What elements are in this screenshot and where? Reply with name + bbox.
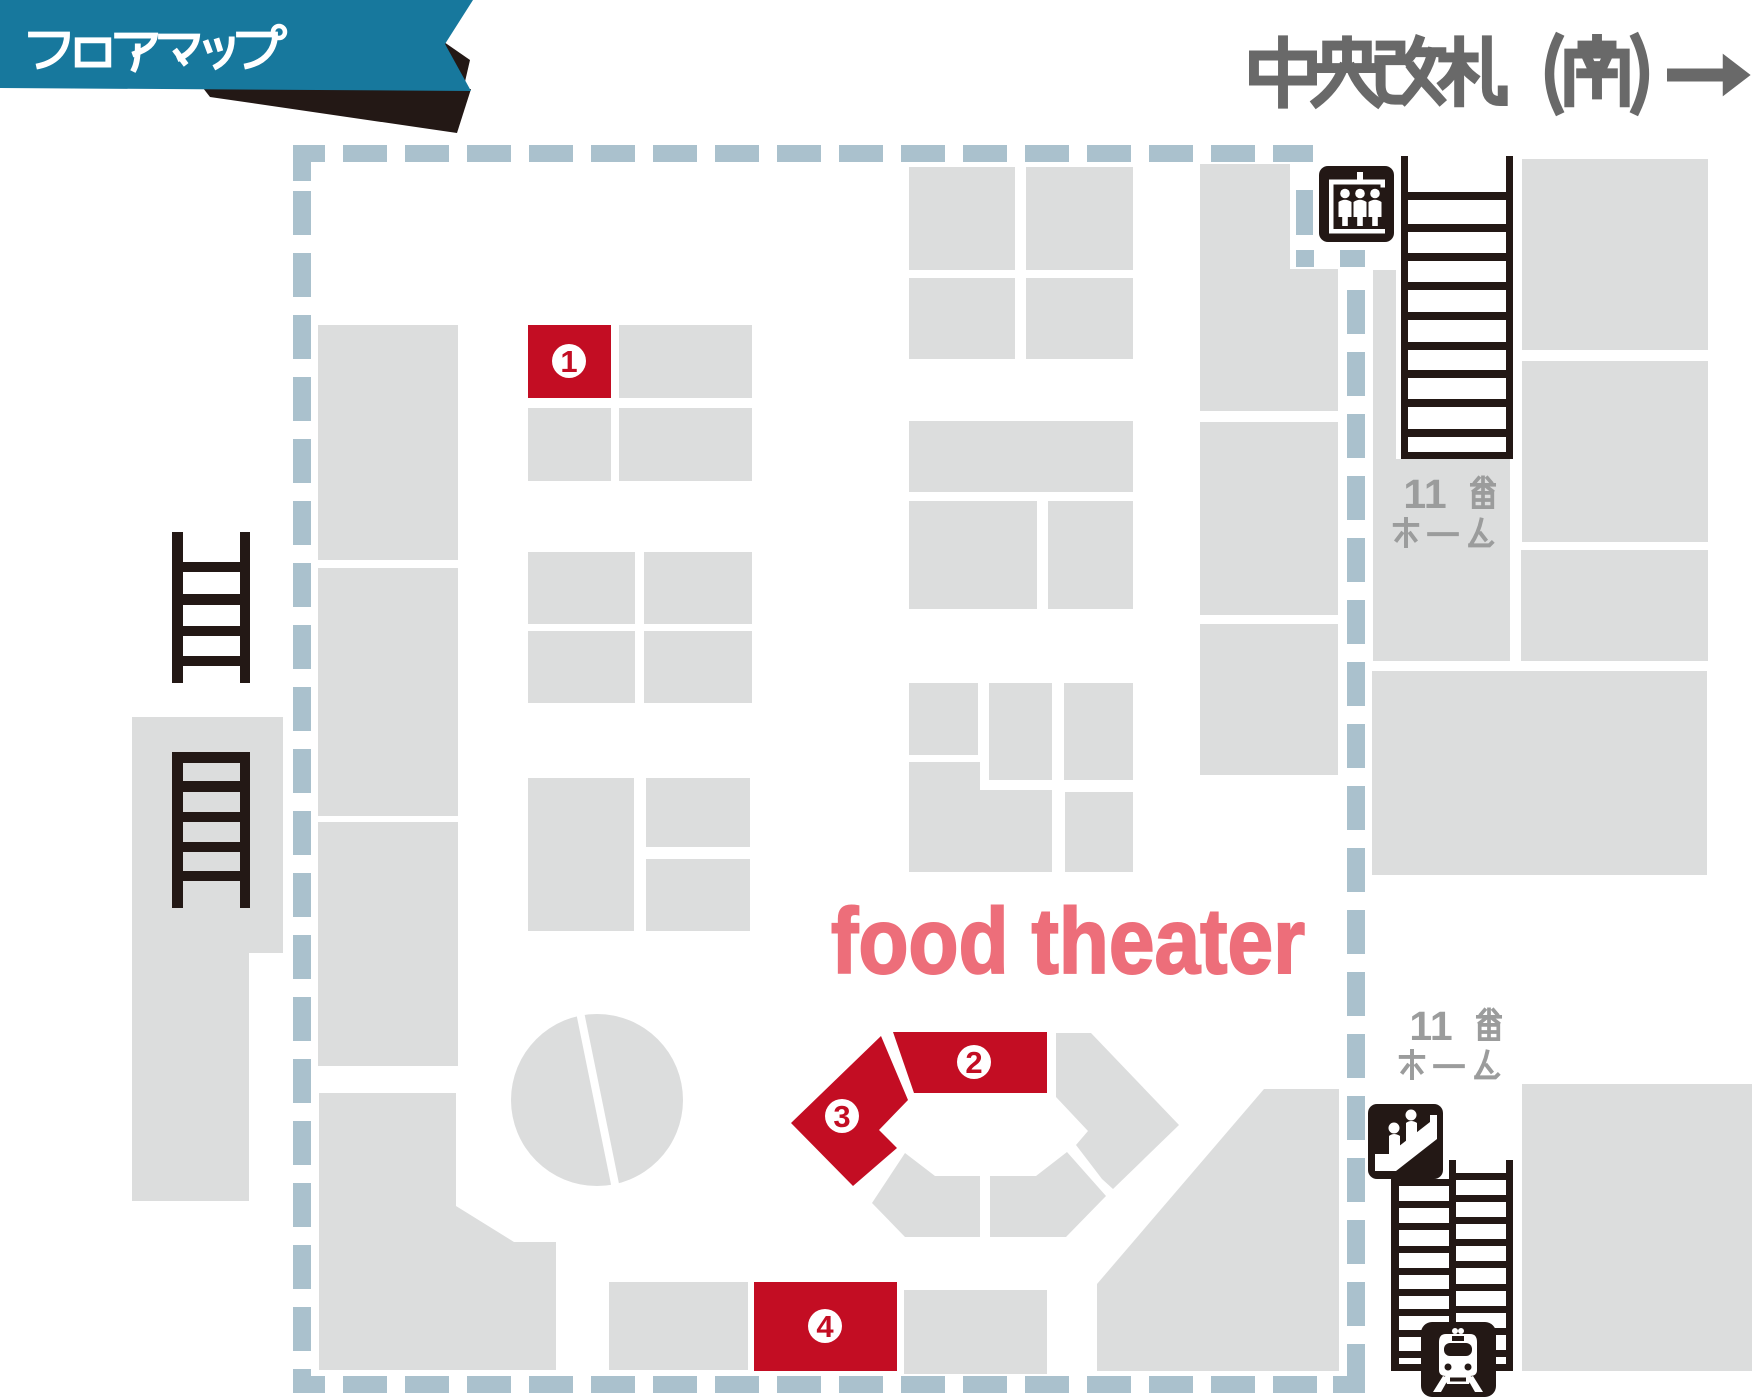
svg-text:2: 2 — [965, 1045, 982, 1080]
svg-text:11: 11 — [1403, 471, 1446, 517]
svg-text:1: 1 — [560, 344, 577, 379]
svg-text:food theater: food theater — [831, 889, 1305, 993]
svg-text:4: 4 — [816, 1309, 834, 1344]
svg-text:3: 3 — [833, 1099, 850, 1134]
